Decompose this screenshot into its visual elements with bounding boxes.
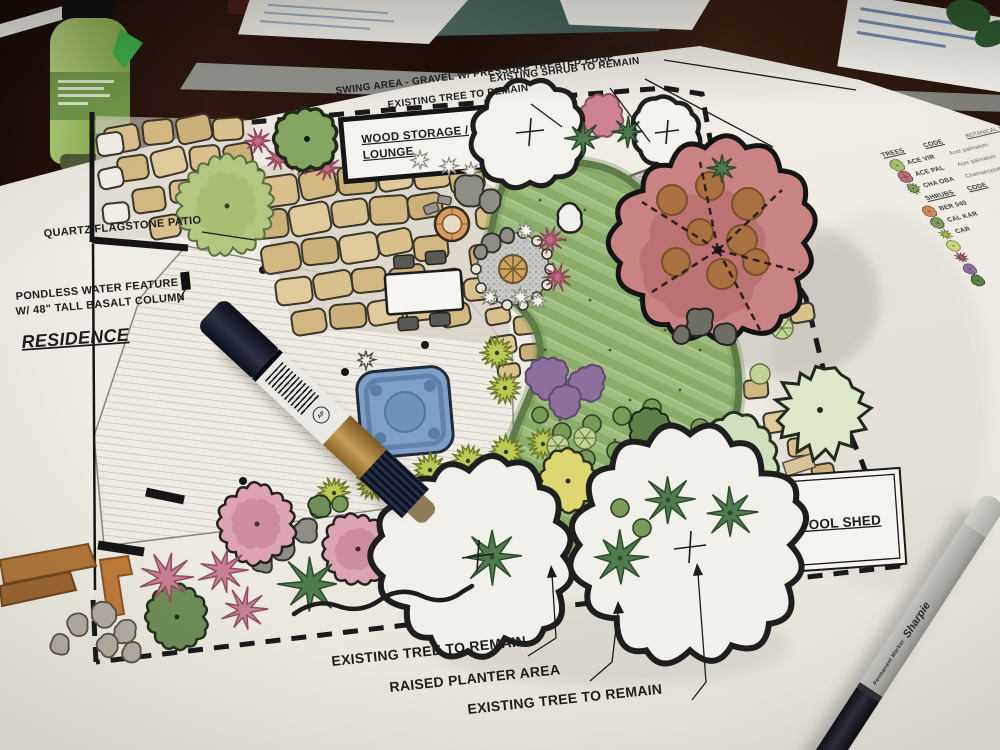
chair <box>430 312 451 326</box>
ap-seal-icon: AP <box>309 403 333 427</box>
label-residence: RESIDENCE <box>21 324 131 352</box>
planter-edging <box>0 544 141 663</box>
gold-paint-marker: AP <box>172 308 432 568</box>
basalt-column <box>180 272 191 291</box>
pinwheel-spokes <box>499 255 527 283</box>
barcode-icon <box>265 362 321 416</box>
label-existing-tree-br: EXISTING TREE TO REMAIN <box>467 681 663 717</box>
white-boulder <box>558 203 582 232</box>
chair <box>393 255 414 269</box>
photo-of-landscape-plan: WOOD STORAGE / LOUNGE TOOL SHED <box>0 0 1000 750</box>
bench <box>437 195 451 205</box>
landscape-plan-drawing: WOOD STORAGE / LOUNGE TOOL SHED <box>0 0 1000 750</box>
chair <box>425 250 446 264</box>
